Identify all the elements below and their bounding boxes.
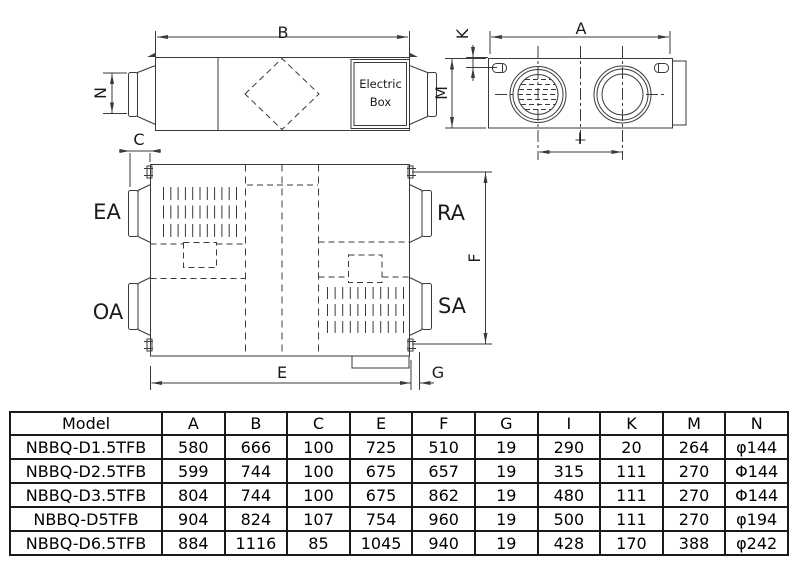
table-cell: 725 [350, 435, 413, 459]
table-cell: 111 [600, 459, 663, 483]
table-cell: 657 [412, 459, 475, 483]
table-cell: Φ144 [725, 483, 788, 507]
table-cell: 744 [225, 459, 288, 483]
col-header-a: A [162, 412, 225, 435]
table-cell: 170 [600, 531, 663, 555]
col-header-c: C [287, 412, 350, 435]
col-header-model: Model [10, 412, 162, 435]
port-label-oa: OA [88, 300, 128, 324]
table-cell: 85 [287, 531, 350, 555]
table-cell: 100 [287, 483, 350, 507]
dim-label-i: I [568, 130, 592, 148]
model-name: NBBQ-D1.5TFB [10, 435, 162, 459]
dim-label-a: A [569, 20, 593, 38]
dim-label-f: F [466, 246, 484, 270]
mounting-clips [144, 166, 416, 351]
table-cell: 290 [538, 435, 601, 459]
table-cell: 744 [225, 483, 288, 507]
table-row: NBBQ-D1.5TFB 580 666 100 725 510 19 290 … [10, 435, 788, 459]
end-view [445, 31, 686, 160]
table-cell: 1116 [225, 531, 288, 555]
col-header-m: M [663, 412, 726, 435]
dim-label-b: B [271, 24, 295, 42]
table-cell: 940 [412, 531, 475, 555]
table-cell: 100 [287, 459, 350, 483]
front-view [119, 149, 492, 390]
port-label-sa: SA [432, 294, 472, 318]
electric-box-line1: Electric [352, 75, 409, 93]
table-cell: 264 [663, 435, 726, 459]
port-label-ra: RA [431, 201, 471, 225]
table-cell: 270 [663, 507, 726, 531]
spec-table: Model A B C E F G I K M N NBBQ-D1.5TFB 5… [9, 411, 789, 556]
table-cell: 754 [350, 507, 413, 531]
table-cell: 107 [287, 507, 350, 531]
table-cell: 500 [538, 507, 601, 531]
table-cell: 510 [412, 435, 475, 459]
col-header-i: I [538, 412, 601, 435]
port-label-ea: EA [87, 200, 127, 224]
col-header-f: F [412, 412, 475, 435]
table-cell: 675 [350, 483, 413, 507]
table-row: NBBQ-D3.5TFB 804 744 100 675 862 19 480 … [10, 483, 788, 507]
model-name: NBBQ-D2.5TFB [10, 459, 162, 483]
col-header-n: N [725, 412, 788, 435]
table-cell: 19 [475, 435, 538, 459]
dim-label-g: G [426, 364, 450, 382]
table-header-row: Model A B C E F G I K M N [10, 412, 788, 435]
table-cell: 824 [225, 507, 288, 531]
table-cell: 599 [162, 459, 225, 483]
table-cell: 1045 [350, 531, 413, 555]
dim-label-e: E [270, 364, 294, 382]
col-header-e: E [350, 412, 413, 435]
model-name: NBBQ-D6.5TFB [10, 531, 162, 555]
dim-label-k: K [454, 22, 472, 46]
table-cell: 270 [663, 459, 726, 483]
col-header-k: K [600, 412, 663, 435]
dim-label-c: C [127, 131, 151, 149]
table-cell: 428 [538, 531, 601, 555]
table-cell: 480 [538, 483, 601, 507]
table-cell: 19 [475, 531, 538, 555]
table-cell: 904 [162, 507, 225, 531]
table-cell: Φ144 [725, 459, 788, 483]
table-cell: 111 [600, 483, 663, 507]
table-cell: 19 [475, 483, 538, 507]
table-cell: 315 [538, 459, 601, 483]
table-cell: 388 [663, 531, 726, 555]
electric-box-label: Electric Box [352, 75, 409, 112]
table-cell: 960 [412, 507, 475, 531]
table-cell: 270 [663, 483, 726, 507]
table-cell: 884 [162, 531, 225, 555]
table-cell: φ194 [725, 507, 788, 531]
col-header-g: G [475, 412, 538, 435]
table-cell: 111 [600, 507, 663, 531]
table-cell: 580 [162, 435, 225, 459]
table-row: NBBQ-D5TFB 904 824 107 754 960 19 500 11… [10, 507, 788, 531]
dim-label-m: M [433, 81, 451, 105]
table-cell: 20 [600, 435, 663, 459]
table-cell: 19 [475, 507, 538, 531]
table-cell: 804 [162, 483, 225, 507]
table-cell: φ242 [725, 531, 788, 555]
table-cell: 675 [350, 459, 413, 483]
table-cell: 862 [412, 483, 475, 507]
table-cell: 100 [287, 435, 350, 459]
dim-label-n: N [92, 81, 110, 105]
model-name: NBBQ-D5TFB [10, 507, 162, 531]
model-name: NBBQ-D3.5TFB [10, 483, 162, 507]
table-row: NBBQ-D2.5TFB 599 744 100 675 657 19 315 … [10, 459, 788, 483]
dimension-drawing-page: B A N M K C I F E G EA RA OA SA Electric… [0, 0, 800, 563]
table-cell: 19 [475, 459, 538, 483]
table-cell: 666 [225, 435, 288, 459]
electric-box-line2: Box [352, 93, 409, 111]
col-header-b: B [225, 412, 288, 435]
table-row: NBBQ-D6.5TFB 884 1116 85 1045 940 19 428… [10, 531, 788, 555]
table-cell: φ144 [725, 435, 788, 459]
